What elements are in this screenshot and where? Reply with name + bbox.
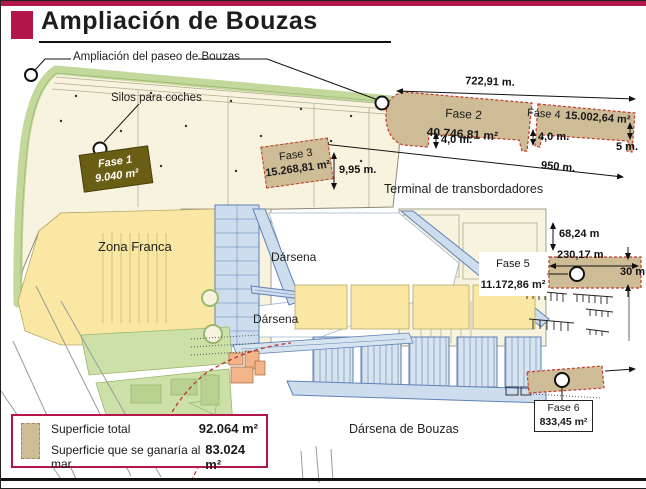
label-silos: Silos para coches [111, 92, 202, 104]
label-darsena-1: Dársena [271, 250, 316, 264]
dim-4b: 4,0 m. [538, 131, 569, 143]
fase6-area: 833,45 m² [535, 416, 592, 430]
dim-4a: 4,0 m. [441, 134, 472, 146]
fase5-name: Fase 5 [496, 258, 530, 270]
fase5-label: Fase 5 11.172,86 m² [479, 252, 547, 296]
fase2-name: Fase 2 [445, 106, 482, 122]
title-underline [39, 41, 391, 43]
marker-fase2 [376, 97, 389, 110]
label-zona-franca: Zona Franca [98, 239, 172, 254]
page-title: Ampliación de Bouzas [41, 7, 318, 36]
label-darsena-2: Dársena [253, 312, 298, 326]
title-bullet-square [11, 11, 33, 39]
legend-value-total: 92.064 m² [199, 421, 258, 436]
dim-23017: 230,17 m [557, 249, 603, 261]
label-paseo: Ampliación del paseo de Bouzas [73, 51, 240, 63]
dim-995: 9,95 m. [339, 164, 376, 176]
legend-box: Superficie total 92.064 m² Superficie qu… [11, 414, 268, 468]
label-terminal: Terminal de transbordadores [384, 182, 543, 196]
fase4-name: Fase 4 [527, 107, 561, 121]
fase6-name: Fase 6 [535, 402, 592, 416]
marker-fase5 [570, 267, 584, 281]
legend-label-mar: Superficie que se ganaría al mar [51, 443, 205, 471]
fase5-area: 11.172,86 m² [481, 279, 546, 291]
bottom-rule [1, 478, 646, 481]
orange-buildings [229, 351, 265, 383]
legend-row: Superficie que se ganaría al mar 83.024 … [51, 442, 258, 472]
fase4-area: 15.002,64 m² [565, 110, 631, 127]
legend-value-mar: 83.024 m² [205, 442, 258, 472]
marker-fase6 [555, 373, 569, 387]
zona-franca-area [18, 209, 217, 345]
dim-5: 5 m. [616, 141, 638, 153]
label-darsena-bouzas: Dársena de Bouzas [349, 422, 459, 436]
fase6-box: Fase 6 833,45 m² [534, 400, 593, 432]
top-accent-bar [1, 1, 646, 6]
legend-row: Superficie total 92.064 m² [51, 421, 258, 436]
infographic-canvas: Ampliación de Bouzas Ampliación del pase… [0, 0, 646, 489]
dim-6824: 68,24 m [559, 228, 599, 240]
legend-label-total: Superficie total [51, 422, 130, 436]
marker-paseo [25, 69, 37, 81]
dim-30: 30 m [620, 266, 645, 278]
legend-swatch [21, 423, 40, 459]
